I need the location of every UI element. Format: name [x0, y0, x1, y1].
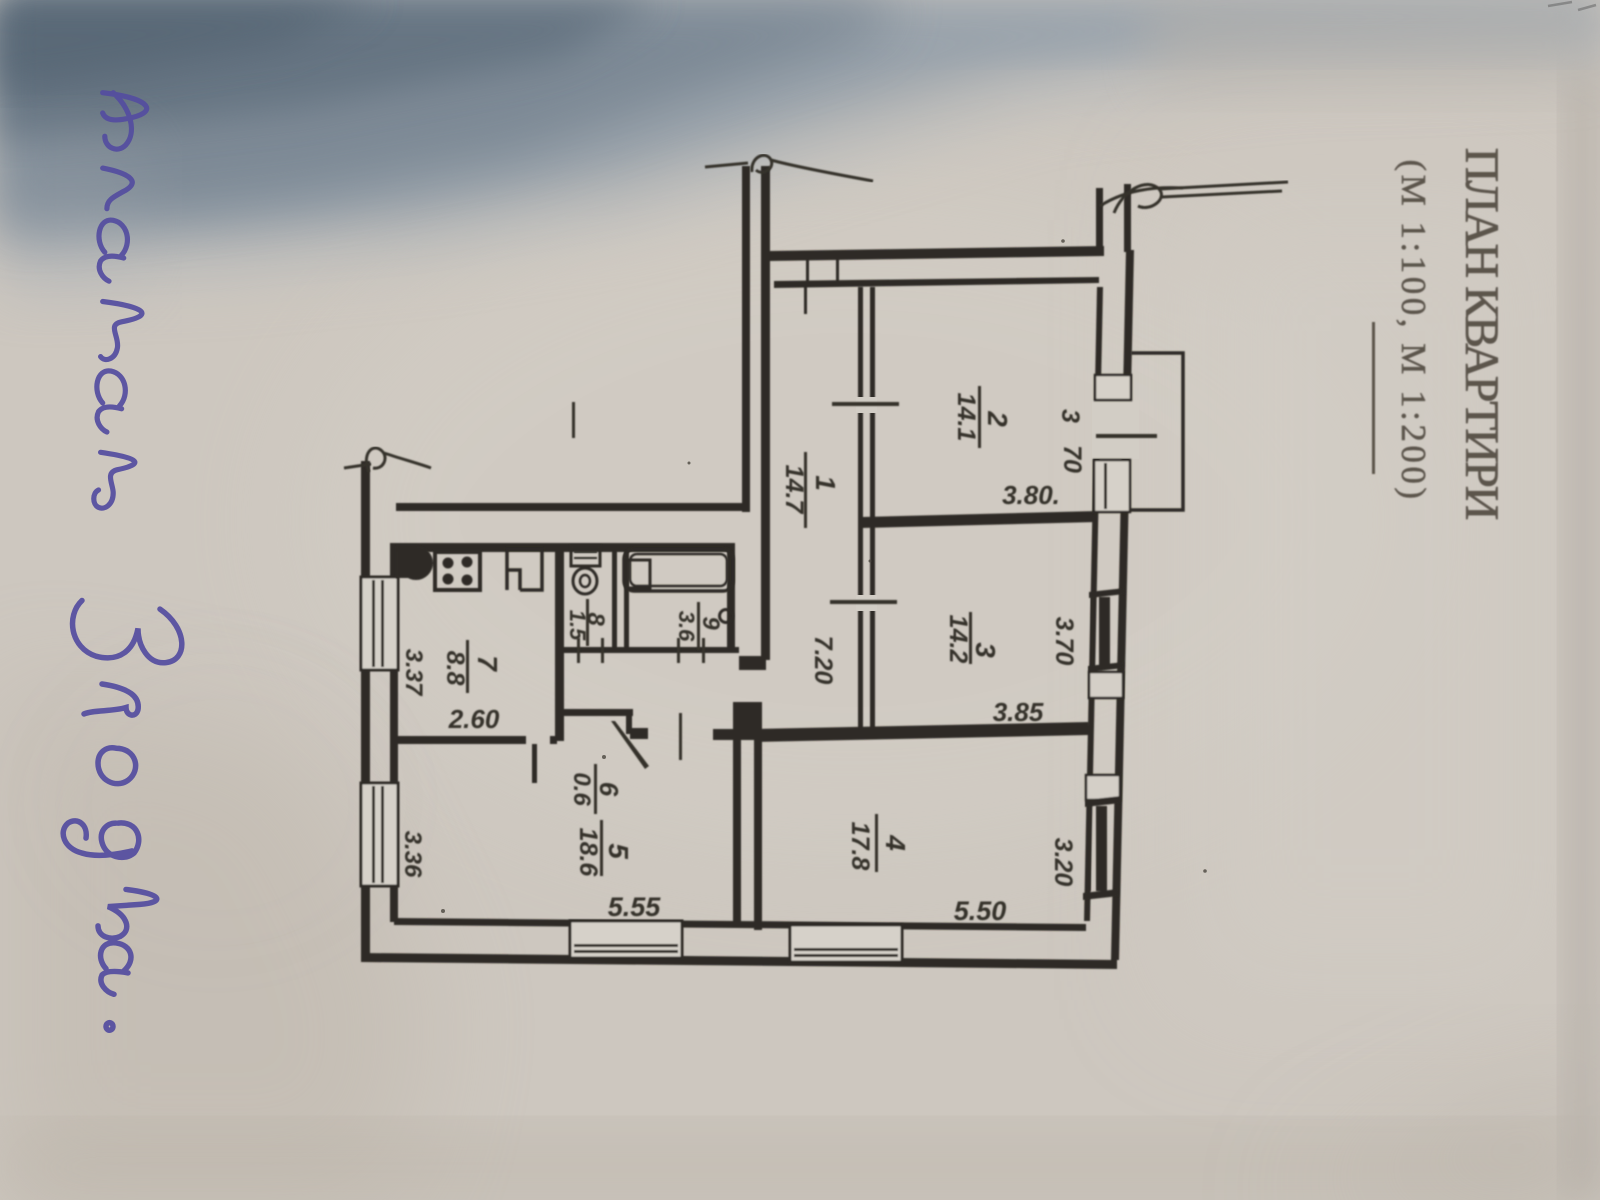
svg-text:9: 9: [697, 616, 724, 630]
svg-text:3: 3: [1056, 409, 1084, 423]
svg-text:4: 4: [880, 834, 911, 851]
svg-text:3: 3: [970, 642, 1001, 658]
svg-text:2.60: 2.60: [448, 704, 500, 734]
svg-text:14.7: 14.7: [780, 465, 808, 515]
svg-text:14.1: 14.1: [952, 393, 980, 442]
svg-text:14.2: 14.2: [944, 615, 972, 664]
svg-text:1: 1: [810, 475, 841, 491]
svg-text:17.8: 17.8: [846, 822, 874, 871]
svg-text:5: 5: [603, 843, 634, 859]
svg-text:ПЛАН КВАРТИРИ: ПЛАН КВАРТИРИ: [1455, 148, 1508, 520]
svg-text:3.85: 3.85: [993, 697, 1044, 727]
svg-text:3.6: 3.6: [674, 611, 699, 642]
svg-text:5.50: 5.50: [954, 896, 1007, 926]
svg-text:1.5: 1.5: [565, 610, 590, 641]
svg-text:6: 6: [594, 782, 624, 797]
svg-text:7: 7: [472, 655, 503, 672]
svg-text:18.6: 18.6: [574, 828, 602, 878]
svg-text:3.70: 3.70: [1050, 617, 1078, 666]
svg-text:8.8: 8.8: [441, 651, 469, 686]
svg-text:3.80.: 3.80.: [1002, 480, 1060, 510]
svg-text:3.20: 3.20: [1049, 838, 1077, 887]
svg-text:3.37: 3.37: [400, 649, 427, 697]
svg-text:2: 2: [982, 410, 1013, 427]
svg-text:5.55: 5.55: [608, 892, 662, 922]
svg-text:70: 70: [1058, 445, 1086, 473]
svg-text:0.6: 0.6: [568, 772, 595, 806]
svg-text:7.20: 7.20: [809, 636, 837, 685]
svg-text:(М 1:100, М 1:200): (М 1:100, М 1:200): [1394, 160, 1433, 503]
svg-text:3.36: 3.36: [399, 831, 426, 878]
